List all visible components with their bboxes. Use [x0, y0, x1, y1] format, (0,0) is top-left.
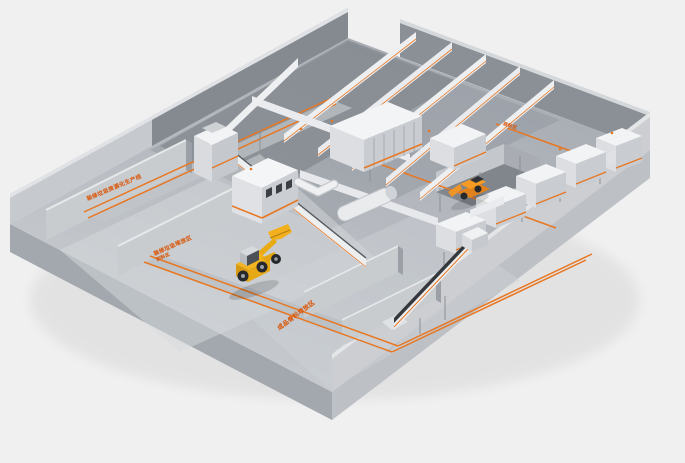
- handler-wheel: [475, 186, 482, 193]
- handler-wheel: [461, 193, 468, 200]
- plant-scene-svg: [0, 0, 685, 463]
- plant-3d-render: 装修垃圾资源化生产线 装修垃圾堆放区 卸料区 成品骨料堆放区 进料区: [0, 0, 685, 463]
